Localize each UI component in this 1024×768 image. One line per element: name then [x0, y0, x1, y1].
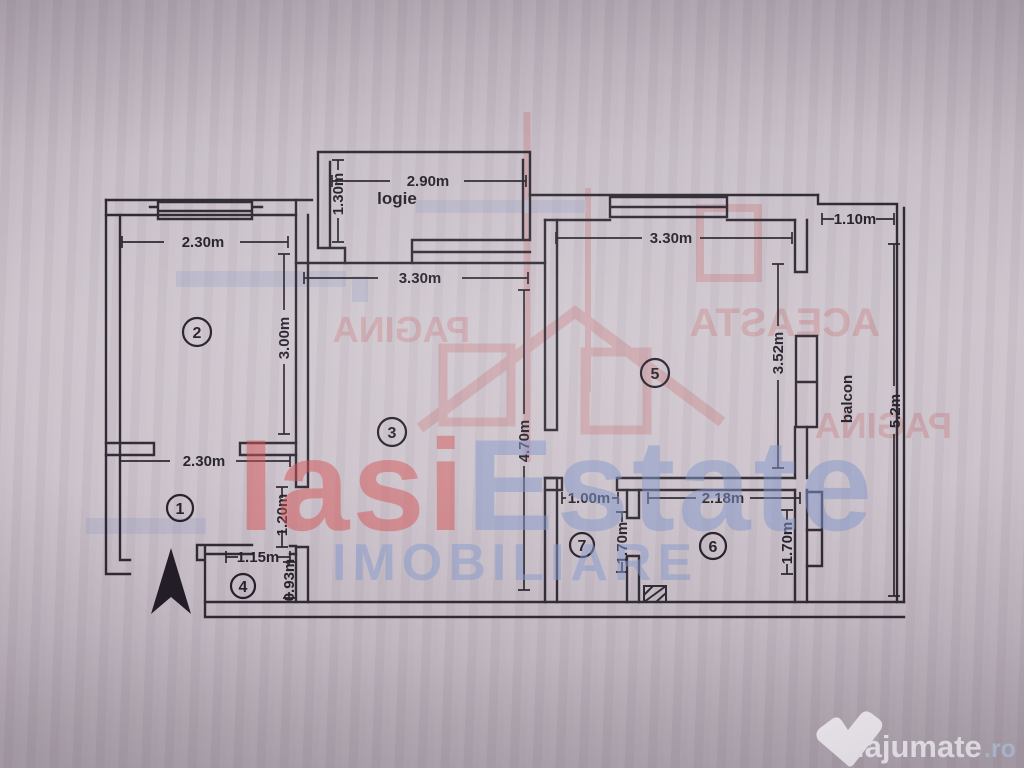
room-2-number: 2 — [183, 318, 211, 346]
dim-balcon-length: 5.2m — [887, 394, 904, 428]
dim-room4-height: 0.93m — [281, 559, 298, 602]
dim-hall-width: 2.30m — [183, 453, 226, 470]
room-4-number: 4 — [231, 574, 255, 598]
dim-balcon-width: 1.10m — [834, 211, 877, 228]
dim-room5-height: 3.52m — [770, 332, 787, 375]
watermark-imobiliare: IMOBILIARE — [332, 534, 698, 592]
svg-text:2: 2 — [193, 325, 202, 342]
dim-room2-height: 3.00m — [276, 317, 293, 360]
floor-plan: ACEASTA PAGINA PAGINA — [0, 0, 1024, 768]
dim-room5-width: 3.30m — [650, 230, 693, 247]
north-arrow-icon — [151, 548, 191, 614]
svg-text:4: 4 — [239, 579, 248, 596]
svg-text:5: 5 — [651, 366, 660, 383]
dim-room3-width: 3.30m — [399, 270, 442, 287]
svg-text:1: 1 — [176, 501, 185, 518]
dim-room2-width: 2.30m — [182, 234, 225, 251]
room-1-number: 1 — [167, 495, 193, 521]
lajumate-text: lajumate — [856, 729, 982, 764]
dim-logie-depth: 1.30m — [330, 173, 347, 216]
stamp-word: PAGINA — [333, 309, 470, 350]
lajumate-tld: .ro — [984, 735, 1016, 763]
label-logie: logie — [377, 189, 417, 208]
lajumate-logo: lajumate .ro — [816, 711, 1016, 766]
dim-logie-width: 2.90m — [407, 173, 450, 190]
floorplan-photo: ACEASTA PAGINA PAGINA — [0, 0, 1024, 768]
